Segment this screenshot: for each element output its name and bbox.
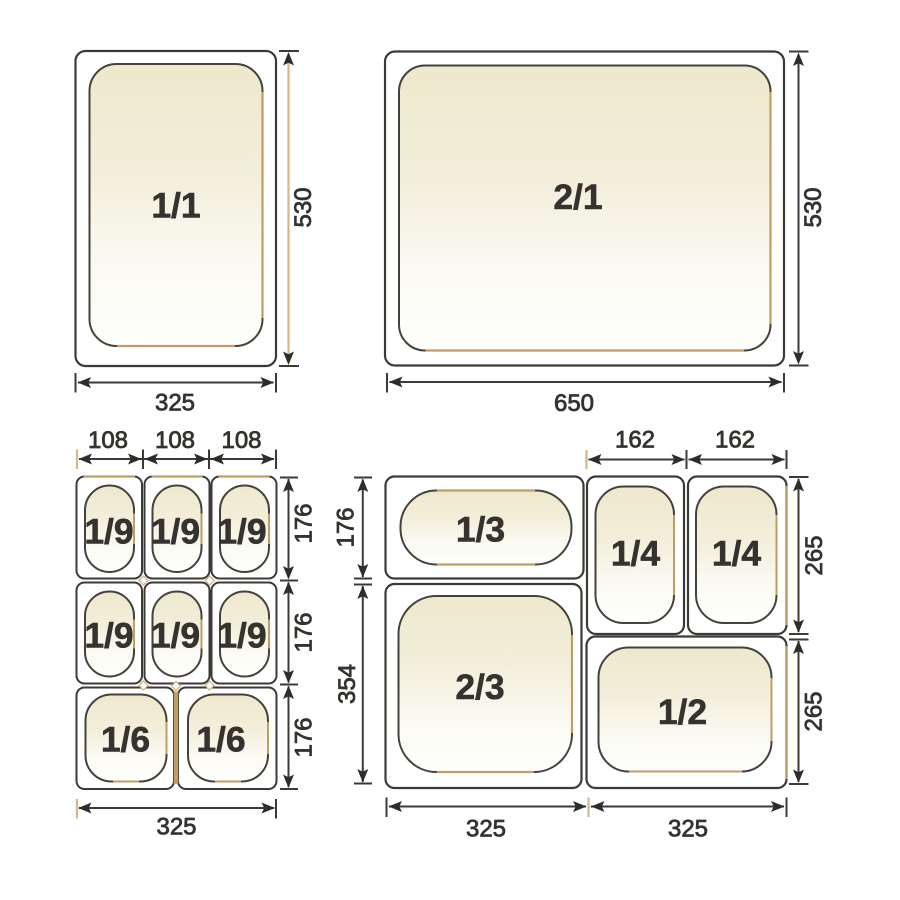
svg-text:325: 325 bbox=[668, 815, 708, 842]
svg-text:1/9: 1/9 bbox=[217, 616, 266, 656]
svg-text:108: 108 bbox=[88, 427, 128, 454]
svg-text:1/4: 1/4 bbox=[712, 534, 762, 574]
svg-text:1/9: 1/9 bbox=[217, 512, 266, 552]
svg-text:530: 530 bbox=[290, 187, 317, 227]
svg-text:325: 325 bbox=[156, 813, 196, 840]
svg-text:176: 176 bbox=[333, 507, 360, 547]
svg-text:650: 650 bbox=[554, 390, 594, 417]
svg-text:1/3: 1/3 bbox=[456, 510, 505, 550]
svg-text:1/6: 1/6 bbox=[101, 720, 150, 760]
svg-text:162: 162 bbox=[615, 426, 655, 453]
svg-text:530: 530 bbox=[800, 187, 827, 227]
svg-text:1/2: 1/2 bbox=[658, 692, 707, 732]
svg-text:1/9: 1/9 bbox=[84, 512, 133, 552]
svg-text:265: 265 bbox=[801, 535, 828, 575]
svg-text:1/1: 1/1 bbox=[151, 186, 200, 226]
svg-text:2/1: 2/1 bbox=[553, 177, 602, 217]
svg-text:162: 162 bbox=[715, 426, 755, 453]
svg-text:2/3: 2/3 bbox=[455, 667, 504, 707]
svg-text:176: 176 bbox=[291, 503, 318, 543]
svg-text:325: 325 bbox=[155, 389, 195, 416]
svg-text:108: 108 bbox=[221, 427, 261, 454]
svg-text:1/6: 1/6 bbox=[196, 720, 245, 760]
svg-text:325: 325 bbox=[466, 815, 506, 842]
svg-text:1/9: 1/9 bbox=[151, 616, 200, 656]
svg-text:108: 108 bbox=[155, 427, 195, 454]
svg-text:176: 176 bbox=[291, 717, 318, 757]
svg-text:1/9: 1/9 bbox=[84, 616, 133, 656]
svg-text:265: 265 bbox=[801, 691, 828, 731]
svg-text:354: 354 bbox=[334, 664, 361, 704]
svg-text:1/9: 1/9 bbox=[151, 512, 200, 552]
svg-text:1/4: 1/4 bbox=[611, 534, 661, 574]
svg-text:176: 176 bbox=[291, 612, 318, 652]
